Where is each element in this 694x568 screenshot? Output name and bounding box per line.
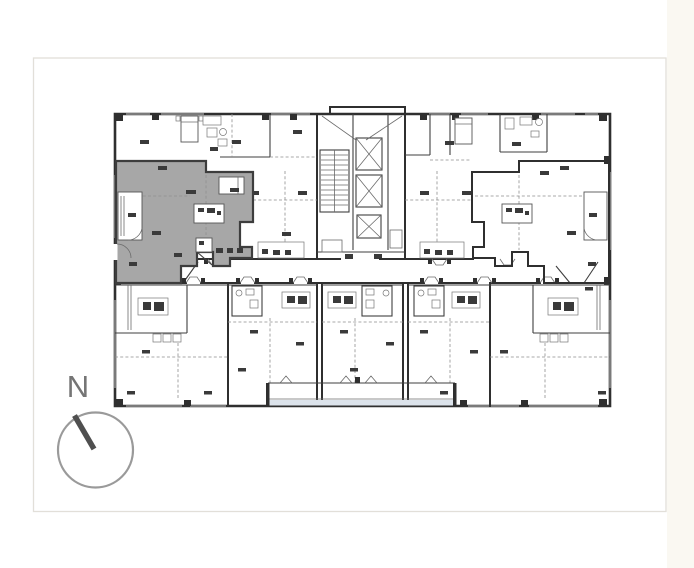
bed-icon (282, 292, 310, 308)
page: N (0, 0, 694, 568)
bathroom-fixtures (502, 204, 532, 223)
corridor-bath-fixtures (258, 242, 304, 258)
kitchen-icons (540, 334, 568, 342)
bed-icon (452, 292, 480, 308)
corridor-bath-fixtures (420, 242, 464, 258)
bed-icon (455, 118, 472, 144)
bed-icon (548, 298, 578, 315)
closet-icon (203, 116, 221, 125)
bed-icon (138, 298, 168, 315)
north-label: N (67, 369, 89, 404)
screenshot-canvas: N (0, 0, 694, 568)
balcony-glazing (268, 400, 455, 406)
right-margin-tint (667, 0, 694, 568)
bed-icon (328, 292, 356, 308)
kitchen-icons (153, 334, 181, 342)
